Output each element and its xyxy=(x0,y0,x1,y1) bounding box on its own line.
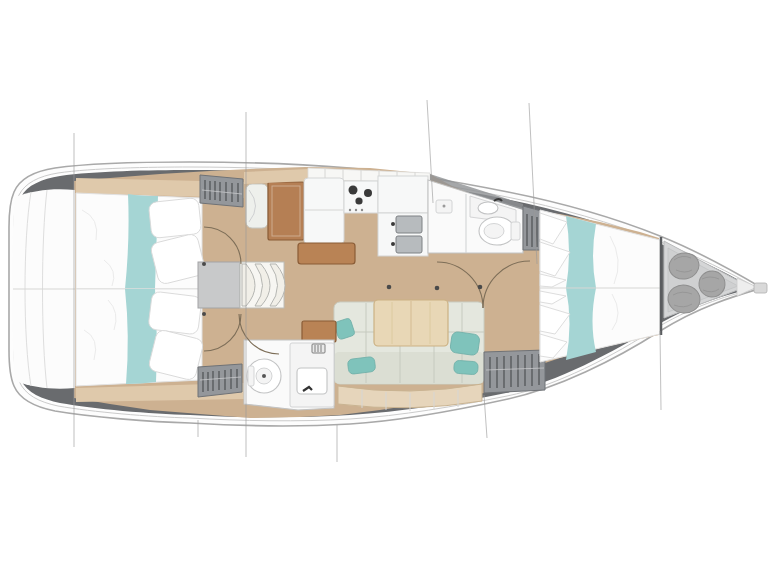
landing xyxy=(198,262,240,308)
door-hinge xyxy=(202,262,206,266)
sink-basin xyxy=(396,216,422,233)
drain-icon xyxy=(443,205,446,208)
pillow xyxy=(148,197,201,238)
faucet-icon xyxy=(391,222,395,226)
yacht-floorplan xyxy=(0,0,768,576)
island-counter xyxy=(298,243,355,264)
worktop xyxy=(378,176,428,213)
door-post xyxy=(435,286,440,291)
hanging-locker xyxy=(198,364,242,397)
toilet-hinge xyxy=(248,366,254,386)
teal-cushion xyxy=(347,356,376,374)
transom xyxy=(12,189,75,388)
yacht-floorplan-canvas xyxy=(0,0,768,576)
door-post xyxy=(478,285,483,290)
hanging-locker xyxy=(200,175,243,207)
hanging-locker-bottom xyxy=(484,350,545,393)
teal-cushion xyxy=(454,360,479,375)
vent-grill-icon xyxy=(312,344,325,353)
washbasin xyxy=(297,368,327,394)
washbasin xyxy=(478,202,498,214)
toilet-bowl xyxy=(484,224,504,239)
chart-table xyxy=(268,182,304,240)
side-cabinet xyxy=(302,321,336,342)
toilet-flush-icon xyxy=(262,374,266,378)
fridge-unit xyxy=(304,178,344,244)
sink-basin xyxy=(396,236,422,253)
faucet-icon xyxy=(391,242,395,246)
aft-head xyxy=(244,340,334,410)
toilet-tank xyxy=(511,222,520,240)
teal-cushion xyxy=(450,331,481,356)
companionway xyxy=(198,262,285,308)
door-hinge xyxy=(202,312,206,316)
anchor-roller xyxy=(754,283,767,293)
door-post xyxy=(387,285,392,290)
stove xyxy=(344,181,378,213)
pillow xyxy=(148,291,202,335)
